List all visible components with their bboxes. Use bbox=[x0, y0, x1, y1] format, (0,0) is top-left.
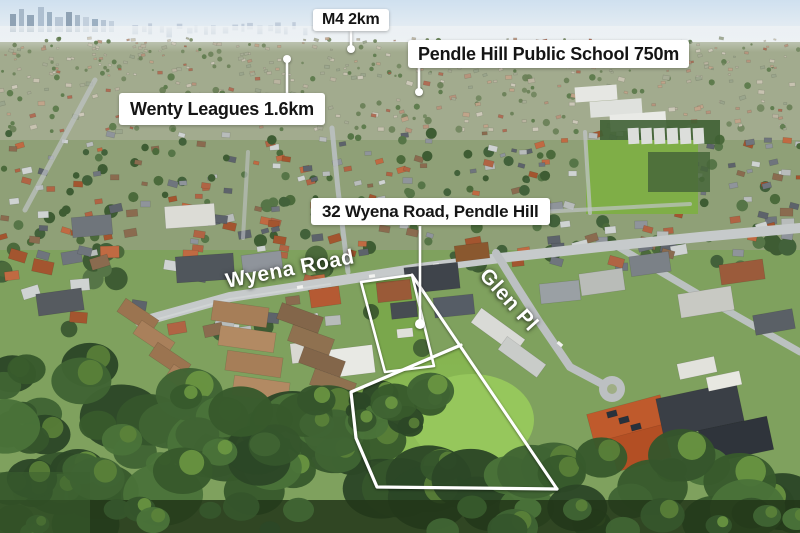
aerial-photo: M4 2km Pendle Hill Public School 750m We… bbox=[0, 0, 800, 533]
poi-label-wenty-leagues: Wenty Leagues 1.6km bbox=[119, 93, 325, 125]
poi-label-school: Pendle Hill Public School 750m bbox=[408, 40, 689, 68]
aerial-photo-background bbox=[0, 0, 800, 533]
poi-label-property-address: 32 Wyena Road, Pendle Hill bbox=[311, 198, 550, 225]
poi-label-m4: M4 2km bbox=[313, 9, 389, 31]
